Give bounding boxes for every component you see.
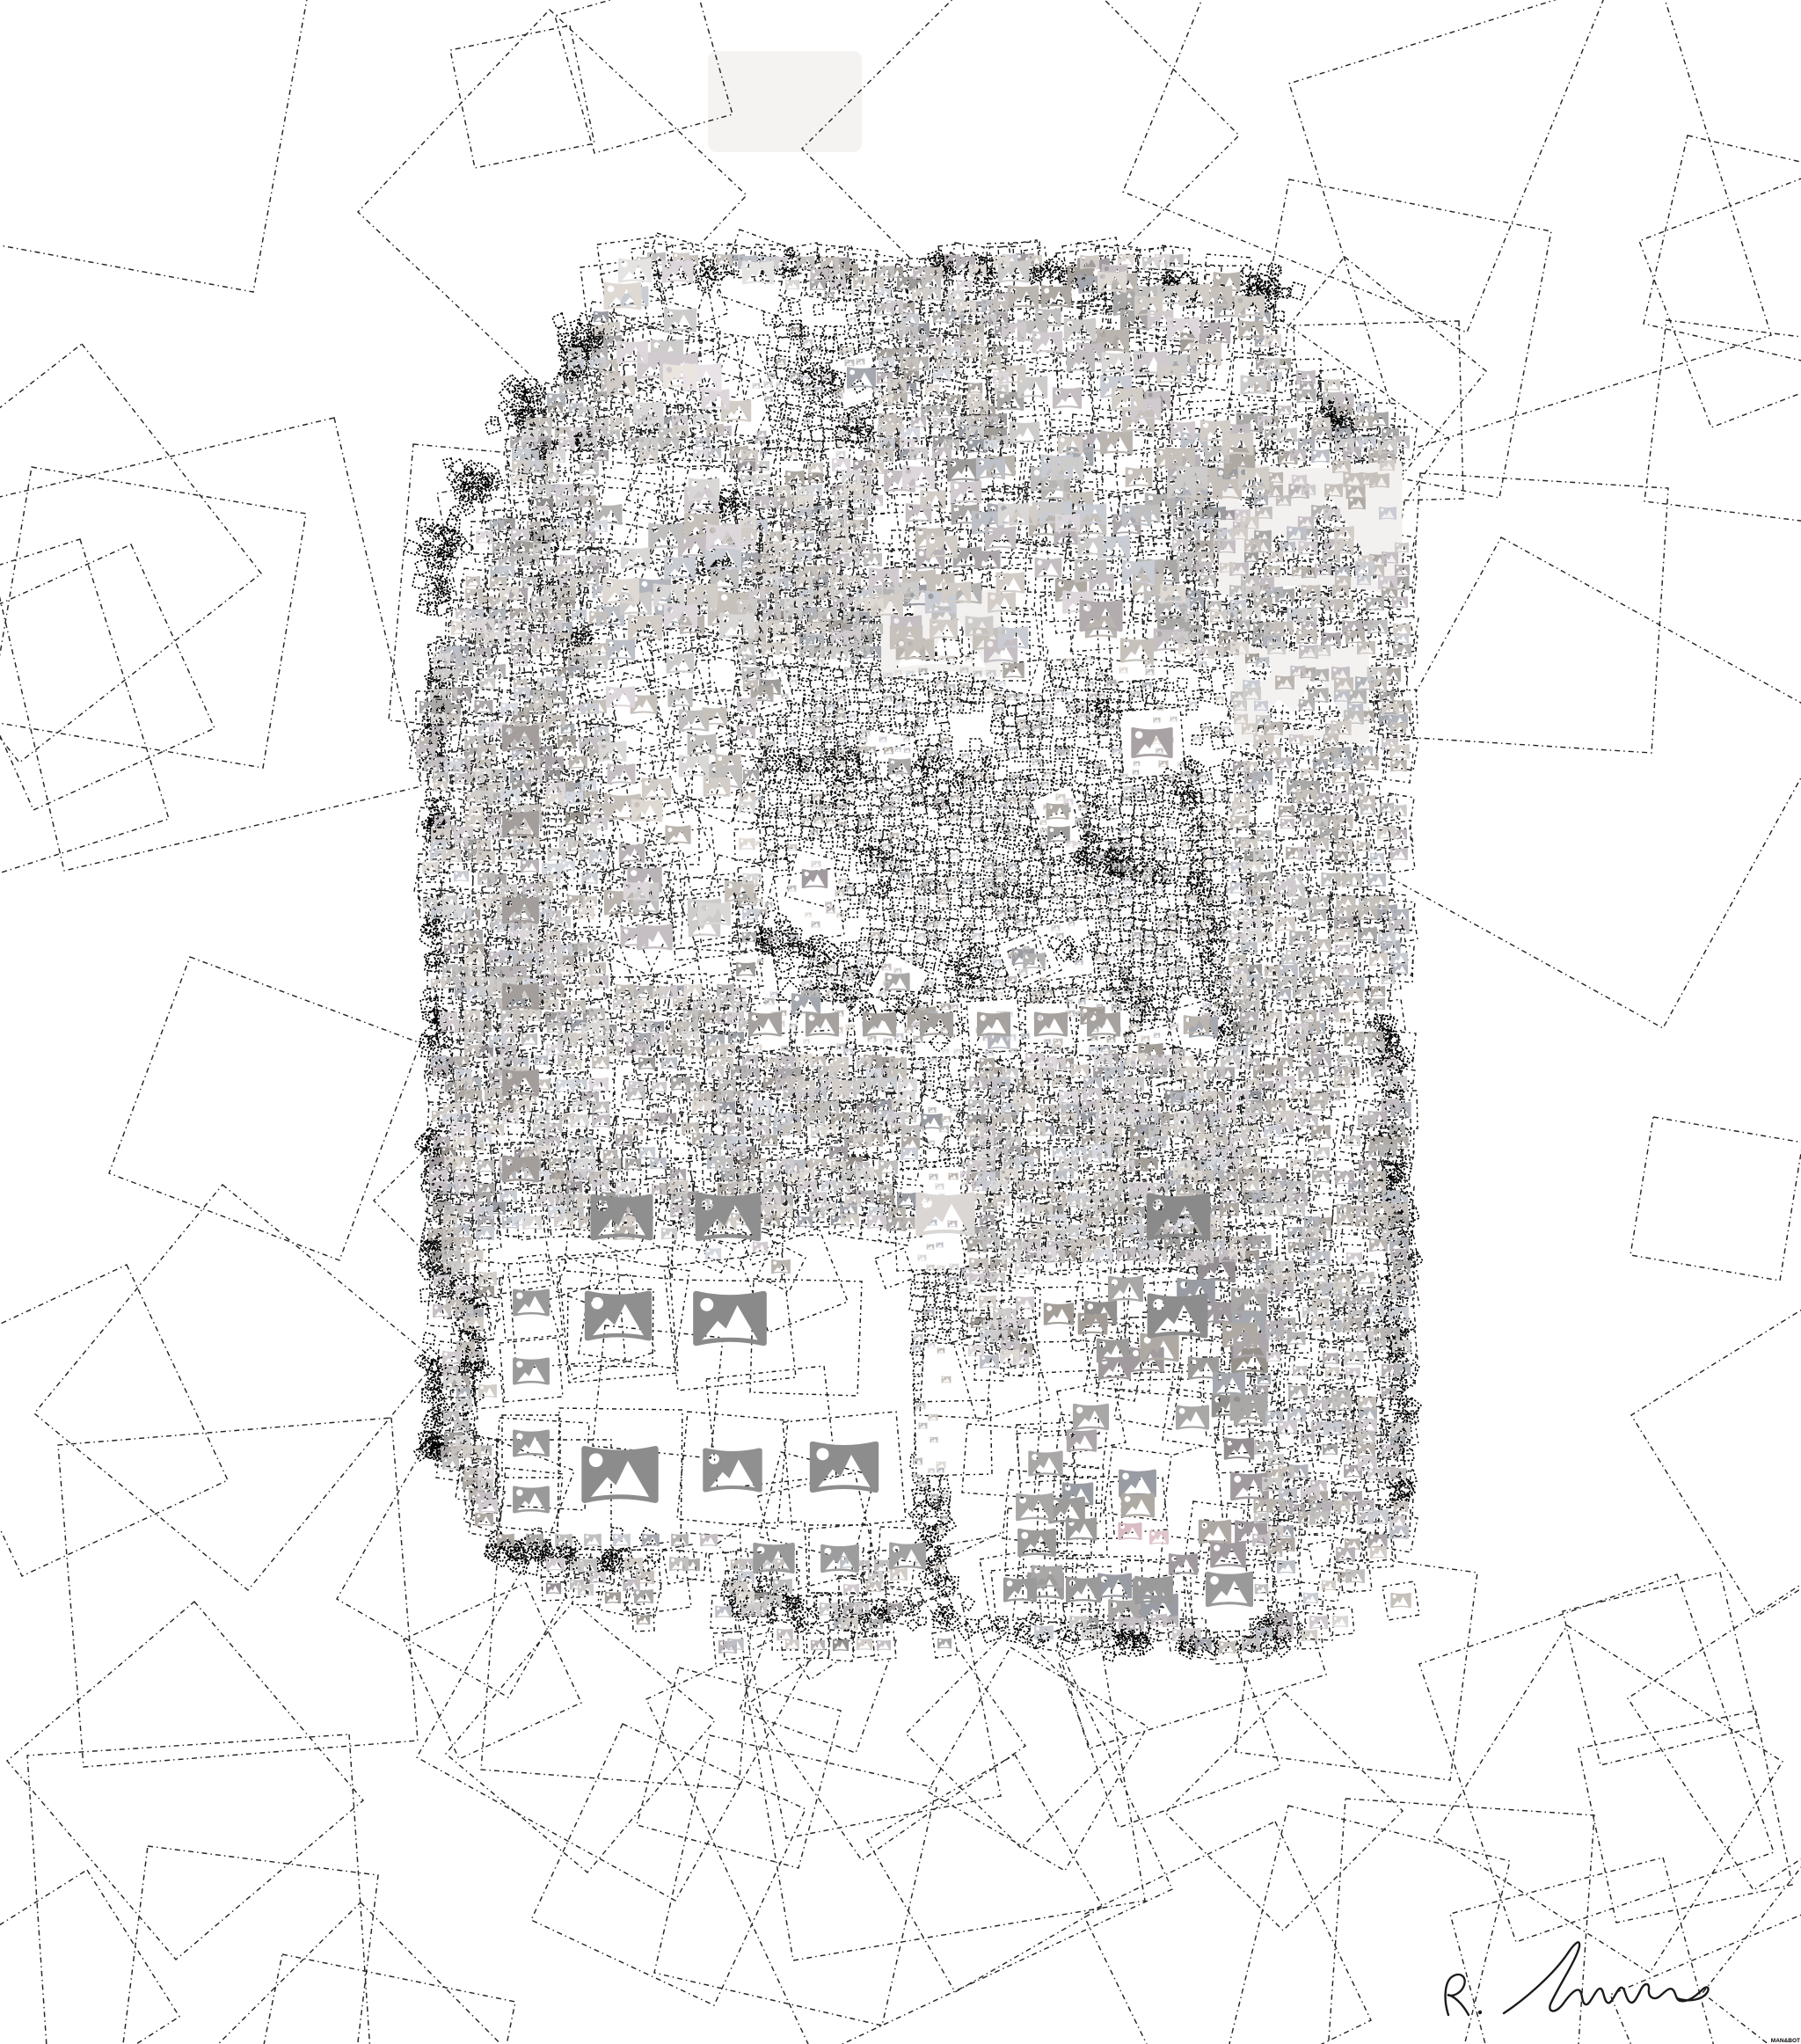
svg-text:MAN&BOT: MAN&BOT	[1771, 2038, 1800, 2044]
